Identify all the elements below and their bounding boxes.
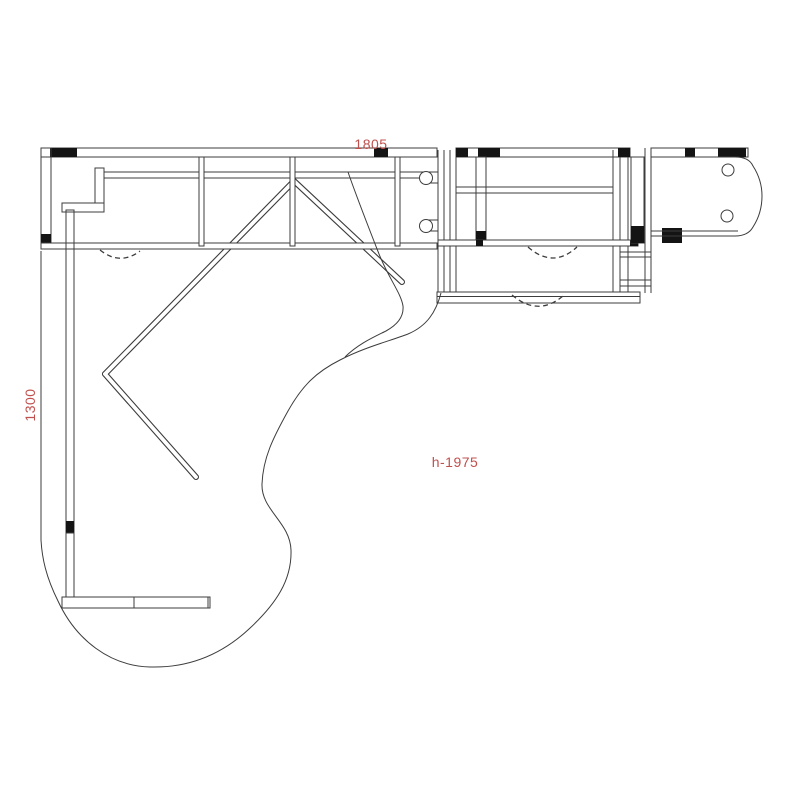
- return-outline: [651, 157, 762, 236]
- cabinet-divider: [199, 157, 204, 246]
- desk-edge-right-lobe: [345, 172, 403, 357]
- pedestal-right-side: [613, 150, 628, 292]
- pedestal-inner-edge: [456, 187, 613, 193]
- right-pedestal-cabinet: [437, 148, 682, 306]
- corner-partition-horizontal: [62, 203, 104, 212]
- grommet-hole: [721, 210, 733, 222]
- pedestal-shelf-edge: [438, 240, 638, 246]
- partition-hatch-strip: [66, 210, 74, 533]
- return-side-panel: [645, 148, 651, 293]
- drawer-pull-arc: [528, 247, 577, 258]
- dimension-height-note: h-1975: [432, 454, 479, 470]
- dimension-annotations: 1805 1300 h-1975: [22, 136, 478, 470]
- cad-plan-canvas: 1805 1300 h-1975: [0, 0, 800, 800]
- grommet-hole: [722, 164, 734, 176]
- cabinet-divider: [395, 157, 400, 246]
- pedestal-plinth: [437, 292, 640, 303]
- dimension-top-width: 1805: [354, 136, 387, 152]
- desk-return-top: [651, 148, 762, 236]
- left-wall-hatch: [41, 148, 51, 246]
- floor-plan-drawing: 1805 1300 h-1975: [0, 0, 800, 800]
- cabinet-bottom-edge: [41, 243, 437, 249]
- cabinet-divider: [290, 157, 295, 246]
- door-swing-arc: [100, 250, 140, 258]
- leg-column-circle: [420, 220, 433, 233]
- cabinet-front-edge: [103, 172, 437, 178]
- side-panel-ticks: [620, 252, 651, 286]
- dimension-left-depth: 1300: [22, 388, 38, 421]
- bottom-shelf-bar: [62, 597, 210, 608]
- cabinet-row-left: [41, 157, 438, 258]
- wall-solid-block: [50, 148, 77, 157]
- left-wall: [41, 148, 51, 246]
- angled-screen-panels: [105, 181, 402, 477]
- leg-column-circle: [420, 172, 433, 185]
- partition-lower-post: [66, 533, 74, 598]
- pedestal-left-side: [438, 150, 456, 292]
